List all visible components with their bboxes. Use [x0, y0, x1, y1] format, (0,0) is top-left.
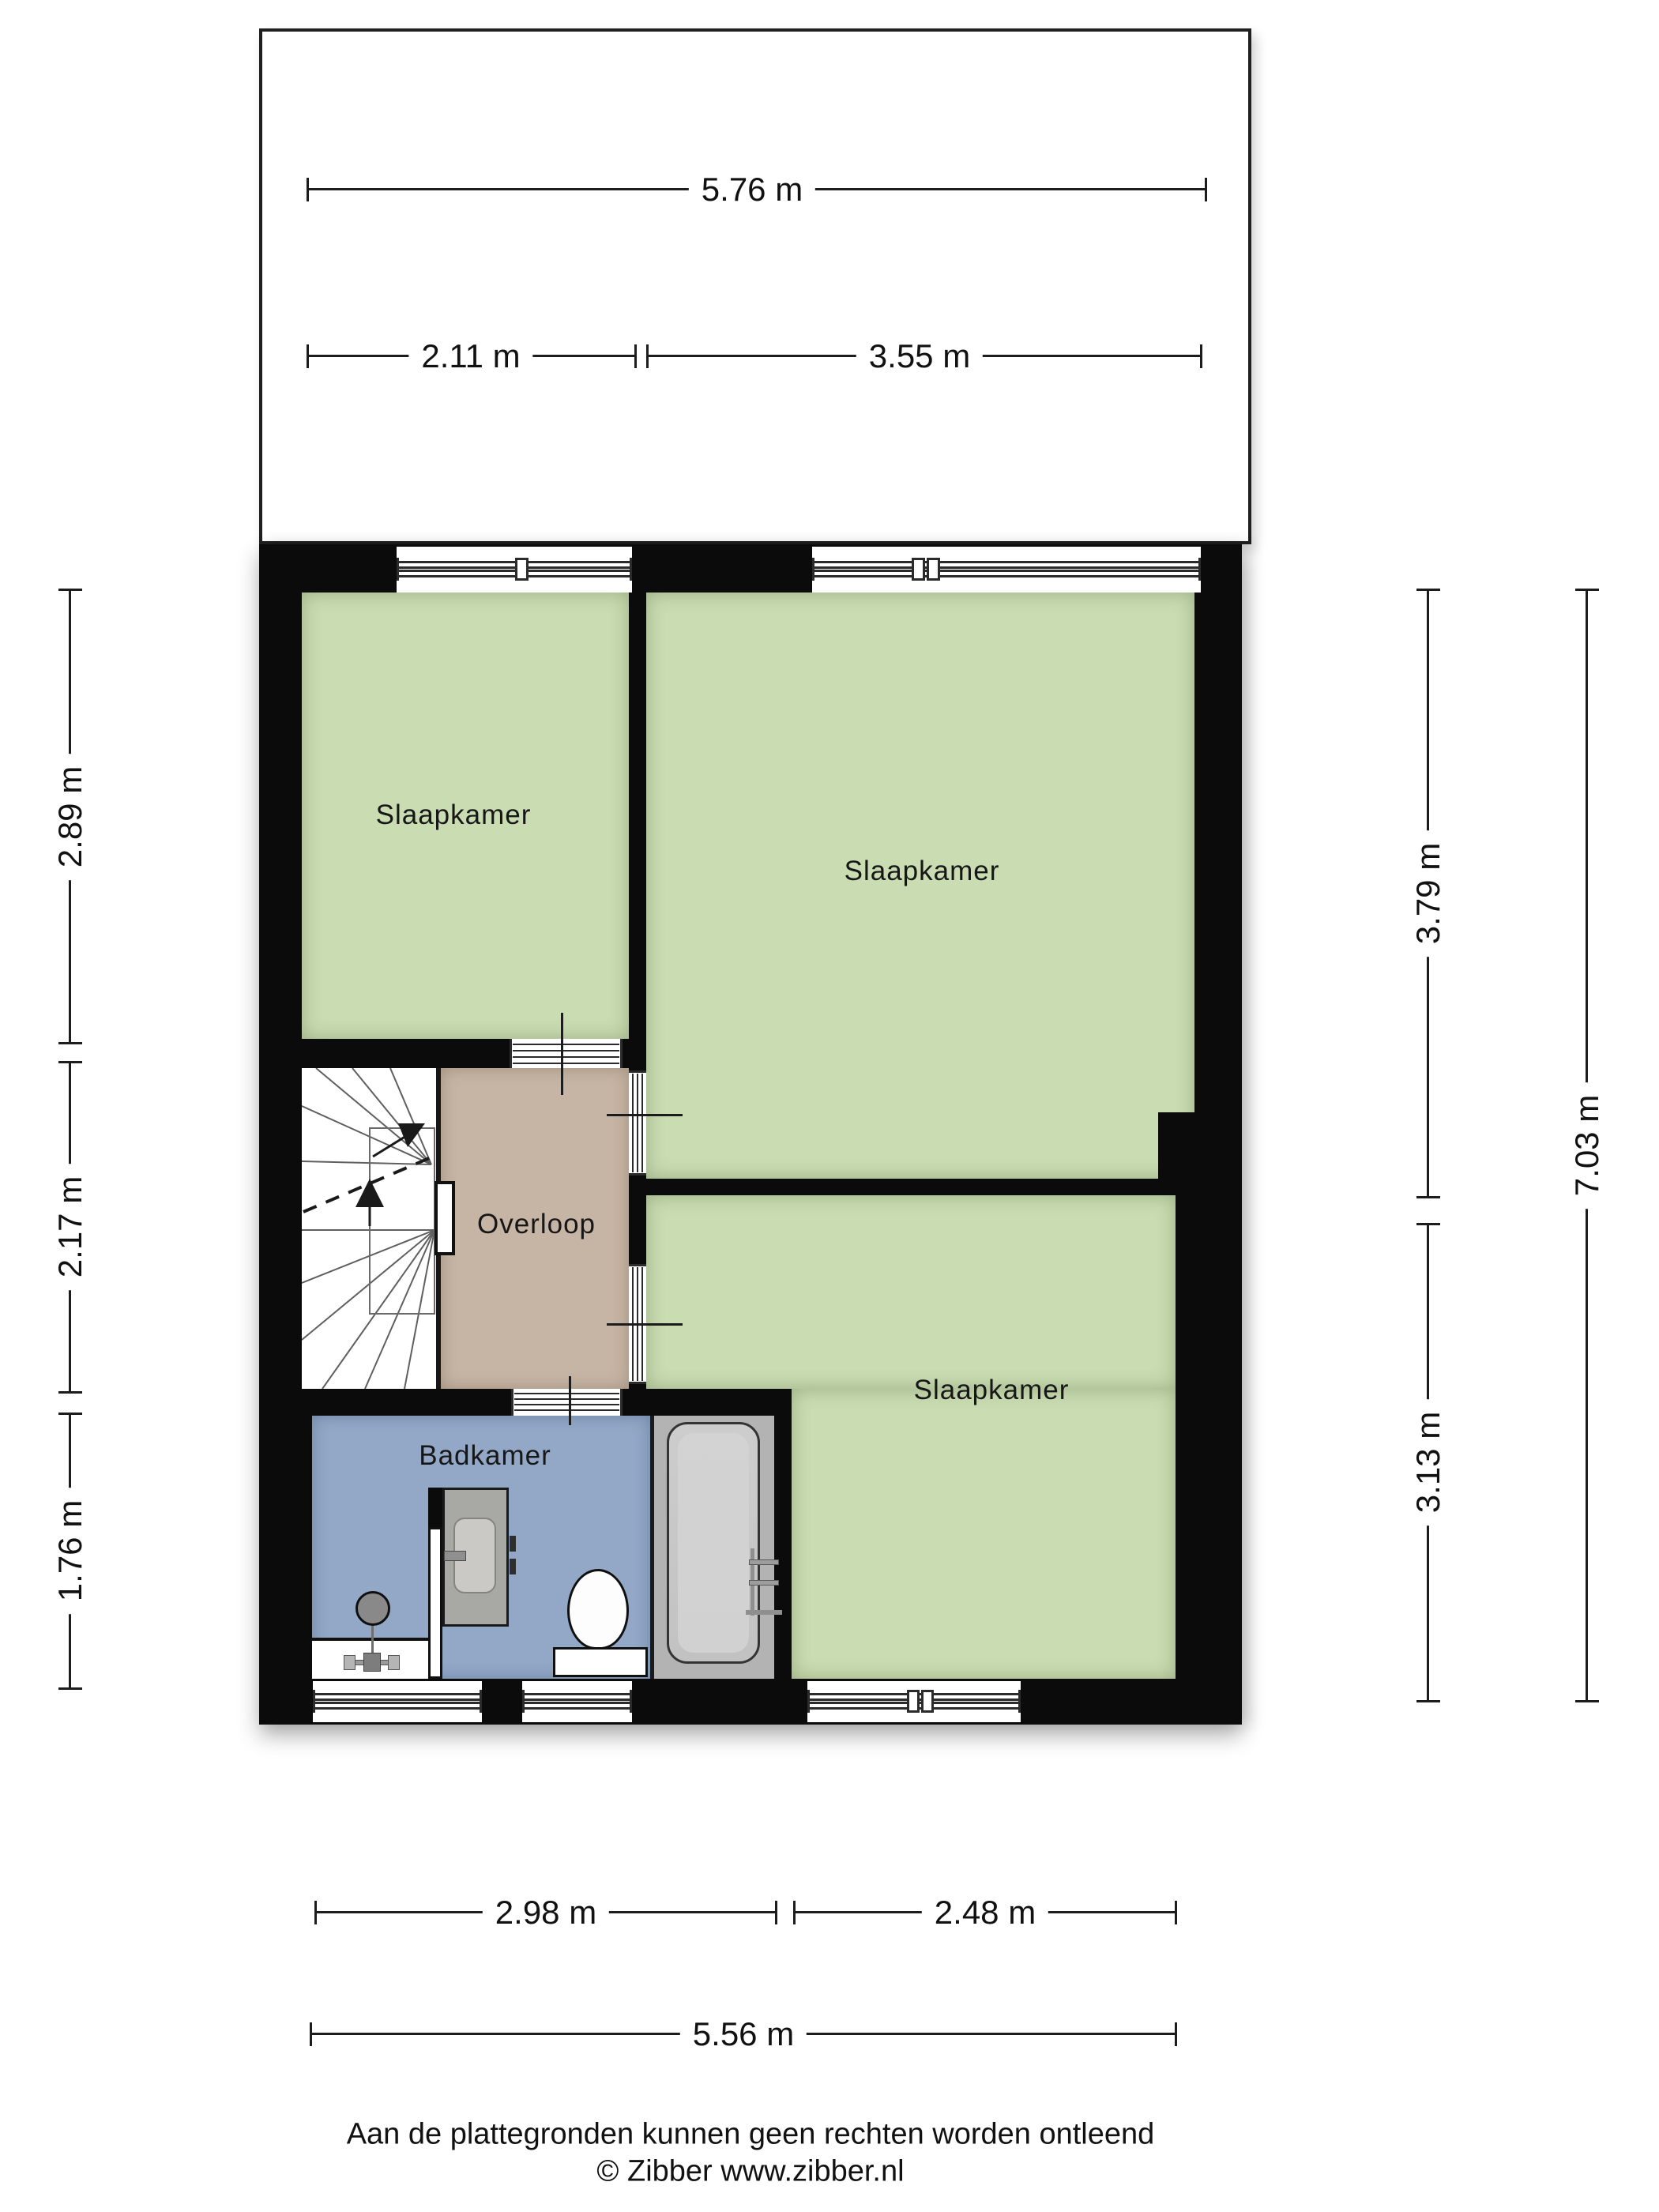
- room-label-bedroom-2: Slaapkamer: [845, 856, 1000, 887]
- room-label-bedroom-1: Slaapkamer: [376, 799, 532, 831]
- door-bedroom-3-centerline: [607, 1323, 683, 1326]
- washbasin-icon: [355, 1591, 390, 1626]
- toilet-bowl-icon: [567, 1569, 629, 1650]
- dim-label-right-bottom: 3.13 m: [1410, 1399, 1446, 1525]
- dim-label-top-right: 3.55 m: [856, 338, 983, 374]
- sink-faucet-handle-left: [344, 1655, 355, 1670]
- door-bathroom-centerline: [569, 1376, 571, 1425]
- dim-label-left-bottom: 1.76 m: [52, 1488, 88, 1614]
- vanity-handle-2: [510, 1559, 516, 1574]
- stairs-handrail: [434, 1181, 455, 1255]
- door-bedroom-2-centerline: [607, 1114, 683, 1116]
- dim-label-left-top: 2.89 m: [52, 754, 88, 880]
- sink-faucet-handle-right: [388, 1655, 400, 1670]
- footer-disclaimer: Aan de plattegronden kunnen geen rechten…: [347, 2118, 1155, 2152]
- dim-label-bottom-total: 5.56 m: [680, 2016, 807, 2052]
- dim-label-right-total: 7.03 m: [1569, 1082, 1605, 1209]
- door-bedroom-2: [629, 1070, 646, 1176]
- floorplan-page: 5.76 m 2.11 m 3.55 m 2.89 m 2.17 m 1.76 …: [0, 0, 1659, 2212]
- bathtub-faucet-bar-2: [749, 1580, 779, 1586]
- bathtub-inner: [678, 1433, 749, 1653]
- wall-notch: [1158, 1112, 1194, 1179]
- bathtub-faucet-bar-1: [749, 1559, 779, 1565]
- dim-label-right-top: 3.79 m: [1410, 830, 1446, 957]
- window-bathroom-left: [313, 1681, 482, 1722]
- door-bedroom-1: [510, 1039, 623, 1068]
- dim-label-left-middle: 2.17 m: [52, 1164, 88, 1290]
- room-bedroom-3-lower: [792, 1389, 1176, 1679]
- window-bedroom-3: [807, 1681, 1021, 1722]
- dim-label-bottom-right: 2.48 m: [922, 1894, 1048, 1931]
- bathtub-faucet-foot: [746, 1610, 782, 1615]
- toilet-cistern: [553, 1647, 648, 1677]
- vanity-wall-stub: [428, 1488, 442, 1527]
- dim-label-top-left: 2.11 m: [408, 338, 532, 374]
- sink-faucet-center: [363, 1653, 381, 1672]
- upper-floor-outline: [259, 28, 1251, 544]
- dim-label-bottom-left: 2.98 m: [483, 1894, 609, 1931]
- window-top-left: [397, 547, 632, 592]
- room-bedroom-3-upper: [646, 1195, 1176, 1389]
- window-top-right: [812, 547, 1201, 592]
- footer-credit: © Zibber www.zibber.nl: [596, 2155, 904, 2189]
- room-label-bedroom-3: Slaapkamer: [914, 1375, 1070, 1406]
- dim-label-top-total: 5.76 m: [689, 171, 815, 208]
- room-label-bathroom: Badkamer: [419, 1440, 551, 1472]
- vanity-faucet-icon: [444, 1551, 466, 1561]
- stairs: [302, 1068, 436, 1389]
- room-label-landing: Overloop: [477, 1209, 596, 1240]
- door-bedroom-1-centerline: [561, 1013, 563, 1095]
- door-bathroom: [511, 1389, 623, 1416]
- window-bathroom-right: [522, 1681, 632, 1722]
- vanity-divider-wall: [428, 1527, 442, 1679]
- vanity-handle-1: [510, 1536, 516, 1552]
